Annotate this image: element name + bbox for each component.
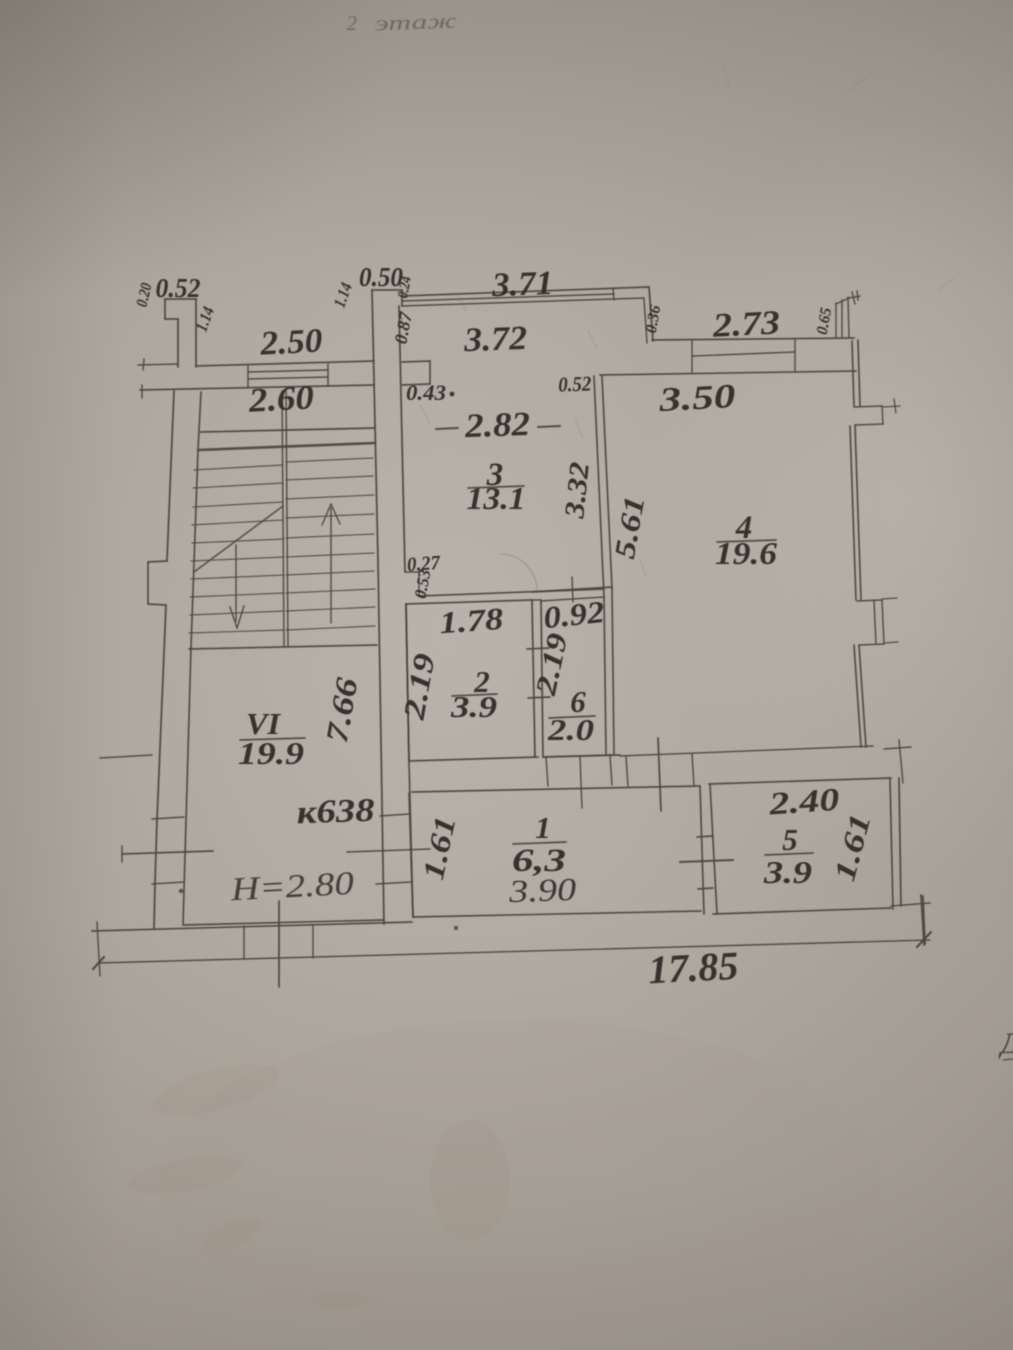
svg-text:2.73: 2.73: [711, 304, 781, 345]
svg-text:19.6: 19.6: [715, 535, 777, 571]
svg-text:19.9: 19.9: [238, 735, 304, 771]
svg-text:3.9: 3.9: [763, 854, 812, 890]
svg-text:1.78: 1.78: [438, 601, 505, 640]
svg-text:H=2.80: H=2.80: [229, 866, 355, 908]
svg-text:3.72: 3.72: [462, 320, 527, 359]
svg-text:3.32: 3.32: [559, 461, 596, 521]
svg-text:2.0: 2.0: [547, 712, 594, 747]
svg-text:2.50: 2.50: [258, 322, 323, 362]
svg-text:к638: к638: [296, 793, 375, 832]
svg-text:2.60: 2.60: [247, 379, 315, 419]
svg-text:5: 5: [782, 822, 798, 857]
svg-text:этаж: этаж: [374, 9, 457, 36]
svg-text:13.1: 13.1: [467, 480, 526, 516]
svg-text:3.71: 3.71: [490, 265, 553, 304]
svg-text:0.52: 0.52: [156, 273, 201, 303]
svg-text:2.40: 2.40: [767, 781, 841, 822]
svg-text:0.92: 0.92: [542, 594, 606, 635]
svg-text:2: 2: [346, 11, 358, 35]
svg-text:3.50: 3.50: [657, 378, 736, 419]
svg-text:3.9: 3.9: [450, 689, 497, 724]
svg-text:17.85: 17.85: [647, 943, 739, 993]
svg-text:0.52: 0.52: [558, 371, 592, 396]
svg-text:1: 1: [535, 810, 551, 845]
svg-text:Д: Д: [998, 1027, 1013, 1060]
svg-text:2.82: 2.82: [463, 406, 530, 445]
svg-text:3.90: 3.90: [507, 871, 576, 909]
svg-text:0.43: 0.43: [406, 380, 446, 405]
